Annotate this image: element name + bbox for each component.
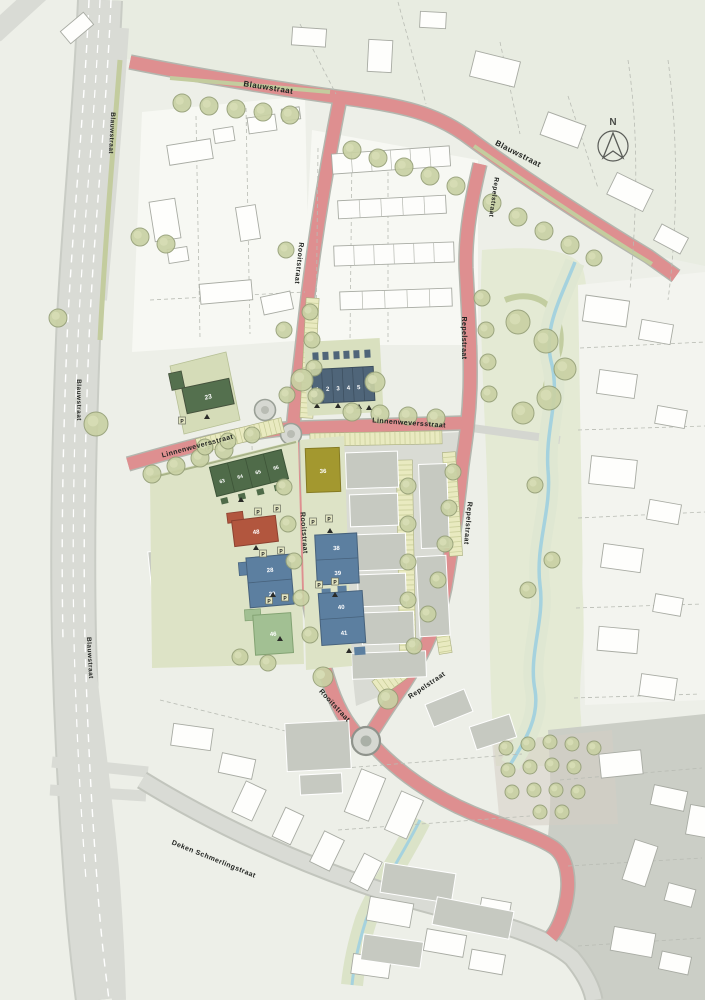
grey-building [357,573,406,607]
house-outline [199,280,253,304]
plot-39-number: 39 [334,571,342,577]
label-repelstraat-2: Repelstraat [460,316,467,359]
house-outline [597,369,638,398]
plot-40-number: 40 [338,605,346,611]
label-blauwstraat-left2: Blauwstraat [75,379,82,421]
house-outline [599,750,643,778]
grey-building [352,651,427,680]
plot-38-number: 38 [333,546,341,552]
house-outline [582,295,629,327]
grey-building [345,451,398,489]
plot-41-number: 41 [341,631,349,637]
grey-building [416,555,450,636]
house-outline [601,543,644,572]
grey-building [300,773,343,795]
house-outline [213,127,235,144]
grey-building [353,533,406,571]
grey-building [285,720,351,771]
plot-36-number: 36 [320,469,328,475]
terrace-row [334,242,455,266]
house-outline [367,39,393,72]
site-plan: 23 63 64 65 66 48 28 [0,0,705,1000]
grey-building [349,493,398,527]
terrace-row [340,288,453,310]
house-outline [420,11,447,28]
house-outline [639,674,678,701]
plot-28-number: 28 [267,568,275,575]
house-outline [589,456,638,489]
house-outline [291,27,326,47]
site-plan-svg: 23 63 64 65 66 48 28 [0,0,705,1000]
north-label: N [609,117,616,128]
plot-36: 36 [305,447,341,492]
plot-46-number: 46 [270,632,278,638]
house-outline [597,626,639,653]
grey-building [361,611,414,645]
